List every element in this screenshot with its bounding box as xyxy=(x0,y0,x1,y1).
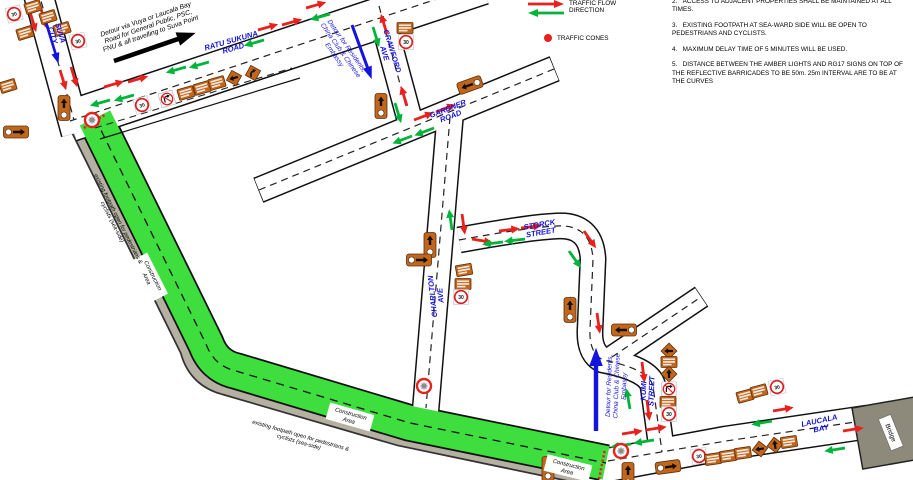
legend-flow-label: TRAFFIC FLOW DIRECTION xyxy=(569,0,616,14)
speed-limit-30-sign xyxy=(69,32,87,50)
roadwork-text-sign xyxy=(455,263,473,277)
annotation-detour-public: Detour via Vuya or Laucala BayRoad for G… xyxy=(97,0,200,54)
bridge-deck xyxy=(852,394,913,469)
traffic-cone-icon xyxy=(544,34,552,42)
street-label-text: AVE xyxy=(435,287,446,305)
bridge: Bridge xyxy=(852,394,913,469)
note-item: 2. ACCESS TO ADJACENT PROPERTIES SHALL B… xyxy=(672,0,908,15)
note-item: 5. DISTANCE BETWEEN THE AMBER LIGHTS AND… xyxy=(672,61,908,86)
speed-limit-30-sign xyxy=(768,378,786,396)
roadwork-text-sign xyxy=(660,397,676,408)
legend-cones-label: TRAFFIC CONES xyxy=(557,35,608,42)
keep-direction-vertical-sign xyxy=(564,298,576,323)
legend: TRAFFIC FLOW DIRECTION TRAFFIC CONES xyxy=(528,0,616,42)
lane-shift-right-sign xyxy=(407,254,432,266)
roadwork-text-sign xyxy=(734,446,751,459)
roadwork-text-sign xyxy=(455,279,471,290)
amber-light-icon xyxy=(85,113,99,127)
speed-limit-30-sign xyxy=(5,5,23,23)
legend-traffic-flow: TRAFFIC FLOW DIRECTION xyxy=(528,0,616,17)
speed-limit-30-sign xyxy=(662,407,677,422)
keep-direction-vertical-sign xyxy=(375,94,387,119)
keep-direction-vertical-sign xyxy=(622,463,634,480)
bridge: Bridge xyxy=(852,394,913,469)
keep-direction-vertical-sign xyxy=(58,96,70,121)
flow-direction-icon xyxy=(528,0,564,17)
flow-arrow-red xyxy=(621,427,643,438)
amber-light-icon xyxy=(614,444,628,458)
roadwork-text-sign xyxy=(397,23,413,34)
note-item: 3. EXISTING FOOTPATH AT SEA-WARD SIDE WI… xyxy=(672,22,908,39)
lane-shift-left-sign xyxy=(612,324,637,336)
flow-arrow-red xyxy=(305,0,327,12)
roadwork-text-sign xyxy=(704,452,721,465)
lane-shift-right-sign xyxy=(4,126,29,138)
ratu-sukuna-road-surface xyxy=(70,0,482,121)
no-turn-sign xyxy=(662,382,676,396)
roadwork-text-sign xyxy=(780,435,797,448)
street-label-text: STREET xyxy=(646,375,656,407)
annotation-text: Embassy xyxy=(621,372,629,400)
roadwork-text-sign xyxy=(750,384,768,399)
legend-traffic-cones: TRAFFIC CONES xyxy=(528,34,616,42)
roadwork-text-sign xyxy=(0,78,17,93)
speed-limit-30-sign xyxy=(454,290,469,305)
amber-light-icon xyxy=(417,379,431,393)
notes-panel: 2. ACCESS TO ADJACENT PROPERTIES SHALL B… xyxy=(672,0,908,94)
traffic-management-plan: 30 xyxy=(0,0,913,480)
speed-limit-30-sign xyxy=(399,35,414,50)
roadwork-text-sign xyxy=(719,449,736,462)
roadwork-text-sign xyxy=(16,25,35,40)
note-item: 4. MAXIMUM DELAY TIME OF 5 MINUTES WILL … xyxy=(672,46,908,54)
flow-arrow-red xyxy=(772,403,794,415)
